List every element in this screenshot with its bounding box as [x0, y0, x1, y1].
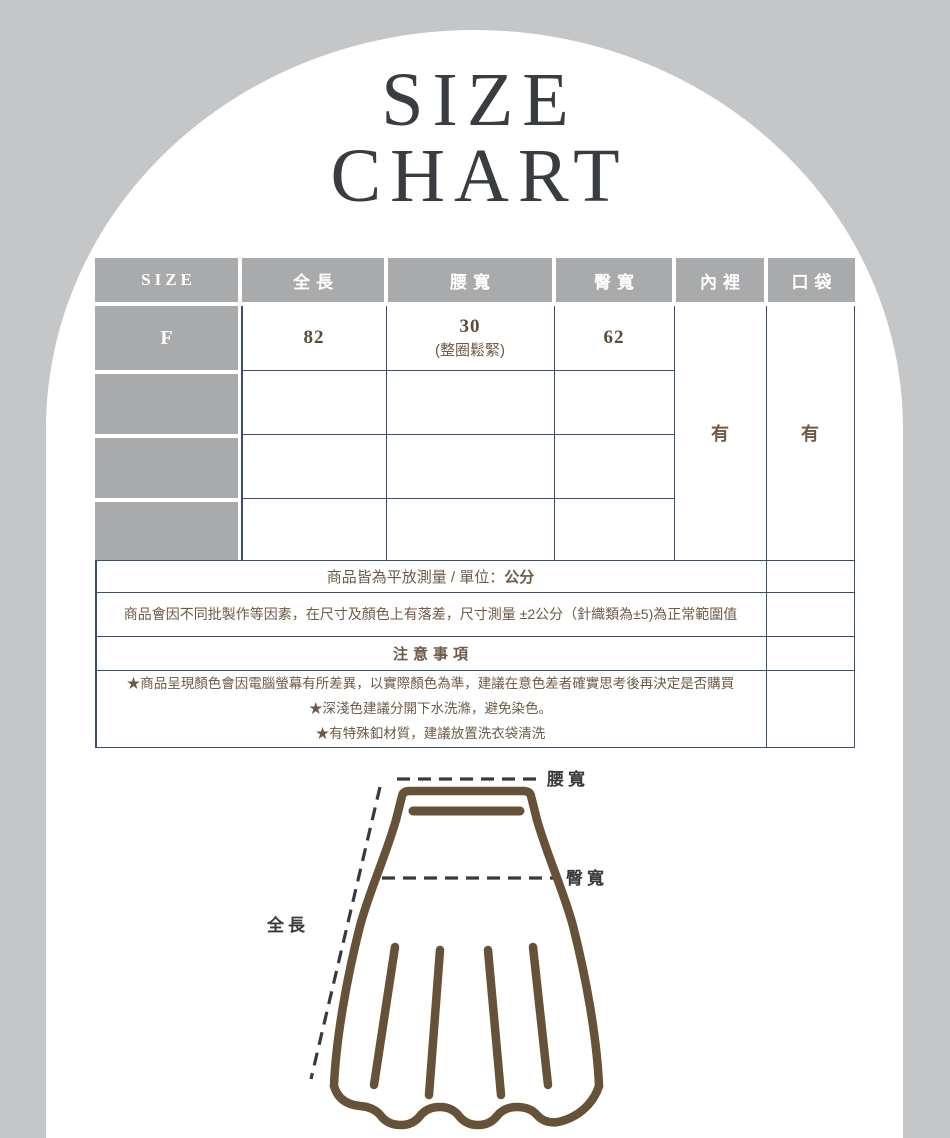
header-lining: 內裡 — [676, 258, 764, 302]
page-title-line2: CHART — [0, 138, 950, 214]
size-cell-row3 — [95, 438, 238, 498]
skirt-left-side — [334, 820, 396, 1086]
note-measurement-unit: 公分 — [504, 566, 534, 587]
waistband-outline — [396, 791, 537, 820]
cell-waist: 30 (整圈鬆緊) — [386, 306, 554, 370]
pleat-line-4 — [533, 947, 548, 1085]
hip-value: 62 — [604, 327, 625, 349]
waist-value: 30 — [460, 316, 481, 338]
header-waist: 腰寬 — [388, 258, 552, 302]
full-length-value: 82 — [304, 327, 325, 349]
waist-note: (整圈鬆緊) — [435, 339, 505, 360]
grid-line — [241, 498, 675, 500]
cell-pocket-merged: 有 — [766, 306, 854, 560]
waist-label: 腰寬 — [547, 769, 589, 789]
pocket-value: 有 — [801, 420, 819, 446]
grid-line — [854, 306, 856, 747]
note-tolerance: 商品會因不同批製作等因素，在尺寸及顏色上有落差，尺寸測量 ±2公分（針織類為±5… — [95, 592, 766, 636]
grid-line — [241, 434, 675, 436]
cell-hip: 62 — [554, 306, 674, 370]
skirt-diagram: 腰寬 臀寬 全長 — [240, 760, 720, 1138]
page-title-line1: SIZE — [0, 62, 950, 138]
header-hip: 臀寬 — [556, 258, 672, 302]
lining-value: 有 — [711, 420, 729, 446]
length-label: 全長 — [266, 915, 309, 935]
attention-item-2: ★深淺色建議分開下水洗滌，避免染色。 — [309, 696, 552, 721]
note-measurement: 商品皆為平放測量 / 單位：公分 — [95, 560, 766, 592]
length-dashed-line — [311, 787, 380, 1079]
pleat-line-1 — [374, 947, 395, 1085]
attention-item-1: ★商品呈現顏色會因電腦螢幕有所差異，以實際顏色為準，建議在意色差者確實思考後再決… — [127, 671, 735, 696]
size-cell-row2 — [95, 374, 238, 434]
note-attention-title: 注意事項 — [95, 636, 766, 670]
hip-label: 臀寬 — [566, 868, 608, 888]
note-measurement-text: 商品皆為平放測量 / 單位： — [327, 566, 505, 587]
size-cell-row4 — [95, 502, 238, 560]
cell-full-length: 82 — [242, 306, 386, 370]
header-size: SIZE — [95, 258, 238, 302]
grid-line — [241, 370, 675, 372]
header-pocket: 口袋 — [768, 258, 855, 302]
header-full-length: 全長 — [242, 258, 384, 302]
note-attention-list: ★商品呈現顏色會因電腦螢幕有所差異，以實際顏色為準，建議在意色差者確實思考後再決… — [95, 670, 766, 747]
pleat-line-3 — [488, 950, 501, 1095]
pleat-line-2 — [429, 950, 440, 1095]
page-title: SIZE CHART — [0, 62, 950, 214]
size-cell-row1: F — [95, 306, 238, 370]
attention-item-3: ★有特殊釦材質，建議放置洗衣袋清洗 — [316, 721, 546, 746]
cell-lining-merged: 有 — [674, 306, 766, 560]
skirt-hem-wave — [334, 1086, 599, 1125]
